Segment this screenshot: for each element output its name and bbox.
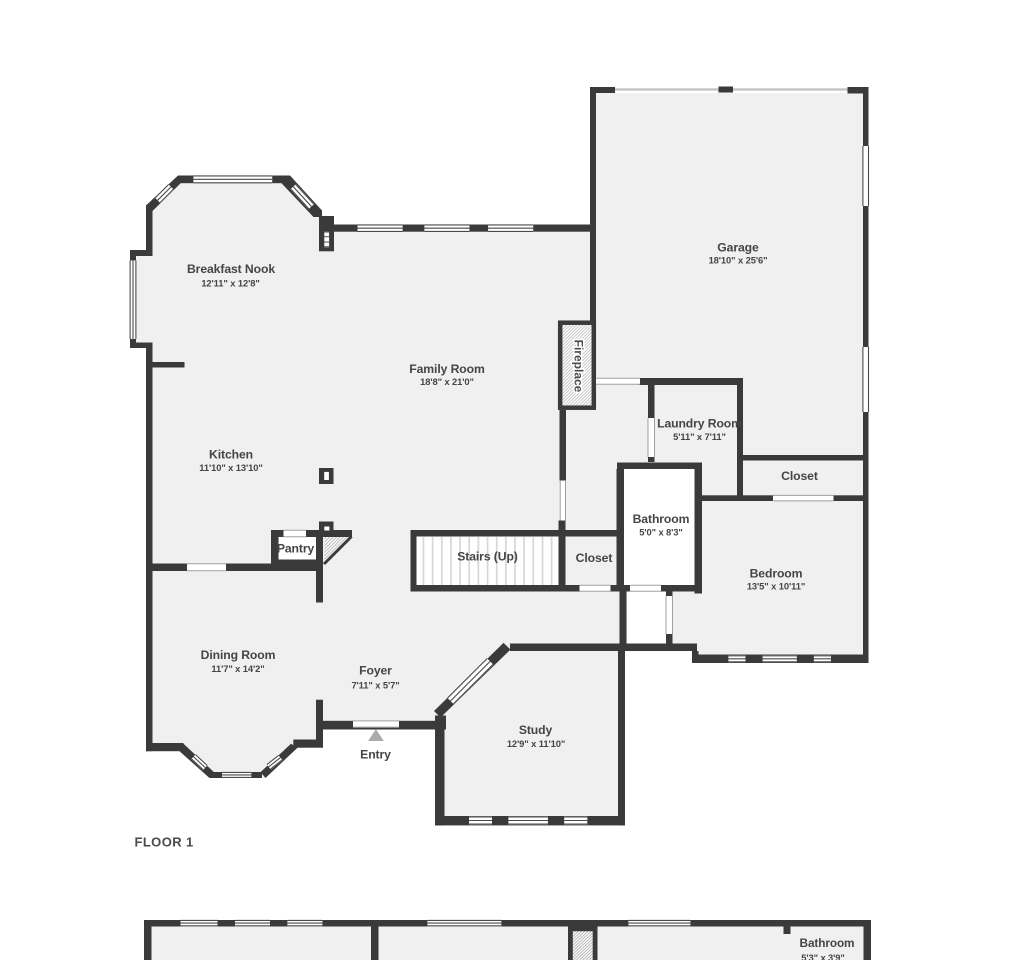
svg-text:Laundry Room: Laundry Room [657, 417, 742, 431]
svg-text:Breakfast Nook: Breakfast Nook [187, 262, 275, 276]
svg-text:Foyer: Foyer [359, 664, 392, 678]
svg-text:5'0" x 8'3": 5'0" x 8'3" [639, 526, 683, 537]
svg-text:Fireplace: Fireplace [571, 340, 585, 393]
svg-text:Bathroom: Bathroom [800, 936, 855, 950]
svg-text:18'10" x 25'6": 18'10" x 25'6" [709, 254, 768, 265]
svg-text:5'3" x 3'9": 5'3" x 3'9" [801, 952, 845, 960]
svg-text:Stairs (Up): Stairs (Up) [457, 550, 518, 564]
svg-text:Bedroom: Bedroom [750, 567, 803, 581]
svg-text:7'11" x 5'7": 7'11" x 5'7" [351, 679, 399, 690]
svg-text:11'7" x 14'2": 11'7" x 14'2" [211, 663, 264, 674]
svg-text:Entry: Entry [360, 748, 391, 762]
svg-text:Closet: Closet [576, 551, 613, 565]
svg-text:Pantry: Pantry [277, 542, 315, 556]
svg-text:FLOOR 1: FLOOR 1 [135, 835, 194, 850]
svg-text:13'5" x 10'11": 13'5" x 10'11" [747, 580, 805, 591]
svg-text:Bathroom: Bathroom [633, 512, 690, 526]
svg-text:Family Room: Family Room [409, 362, 485, 376]
svg-text:12'11" x 12'8": 12'11" x 12'8" [201, 277, 259, 288]
svg-text:Garage: Garage [717, 241, 759, 255]
svg-text:11'10" x 13'10": 11'10" x 13'10" [199, 462, 262, 473]
svg-text:12'9" x 11'10": 12'9" x 11'10" [507, 738, 565, 749]
svg-text:18'8" x 21'0": 18'8" x 21'0" [420, 376, 474, 387]
svg-text:Dining Room: Dining Room [201, 648, 276, 662]
svg-text:Study: Study [519, 723, 553, 737]
svg-text:Closet: Closet [781, 469, 818, 483]
svg-text:Kitchen: Kitchen [209, 448, 253, 462]
svg-text:5'11" x 7'11": 5'11" x 7'11" [673, 431, 726, 442]
